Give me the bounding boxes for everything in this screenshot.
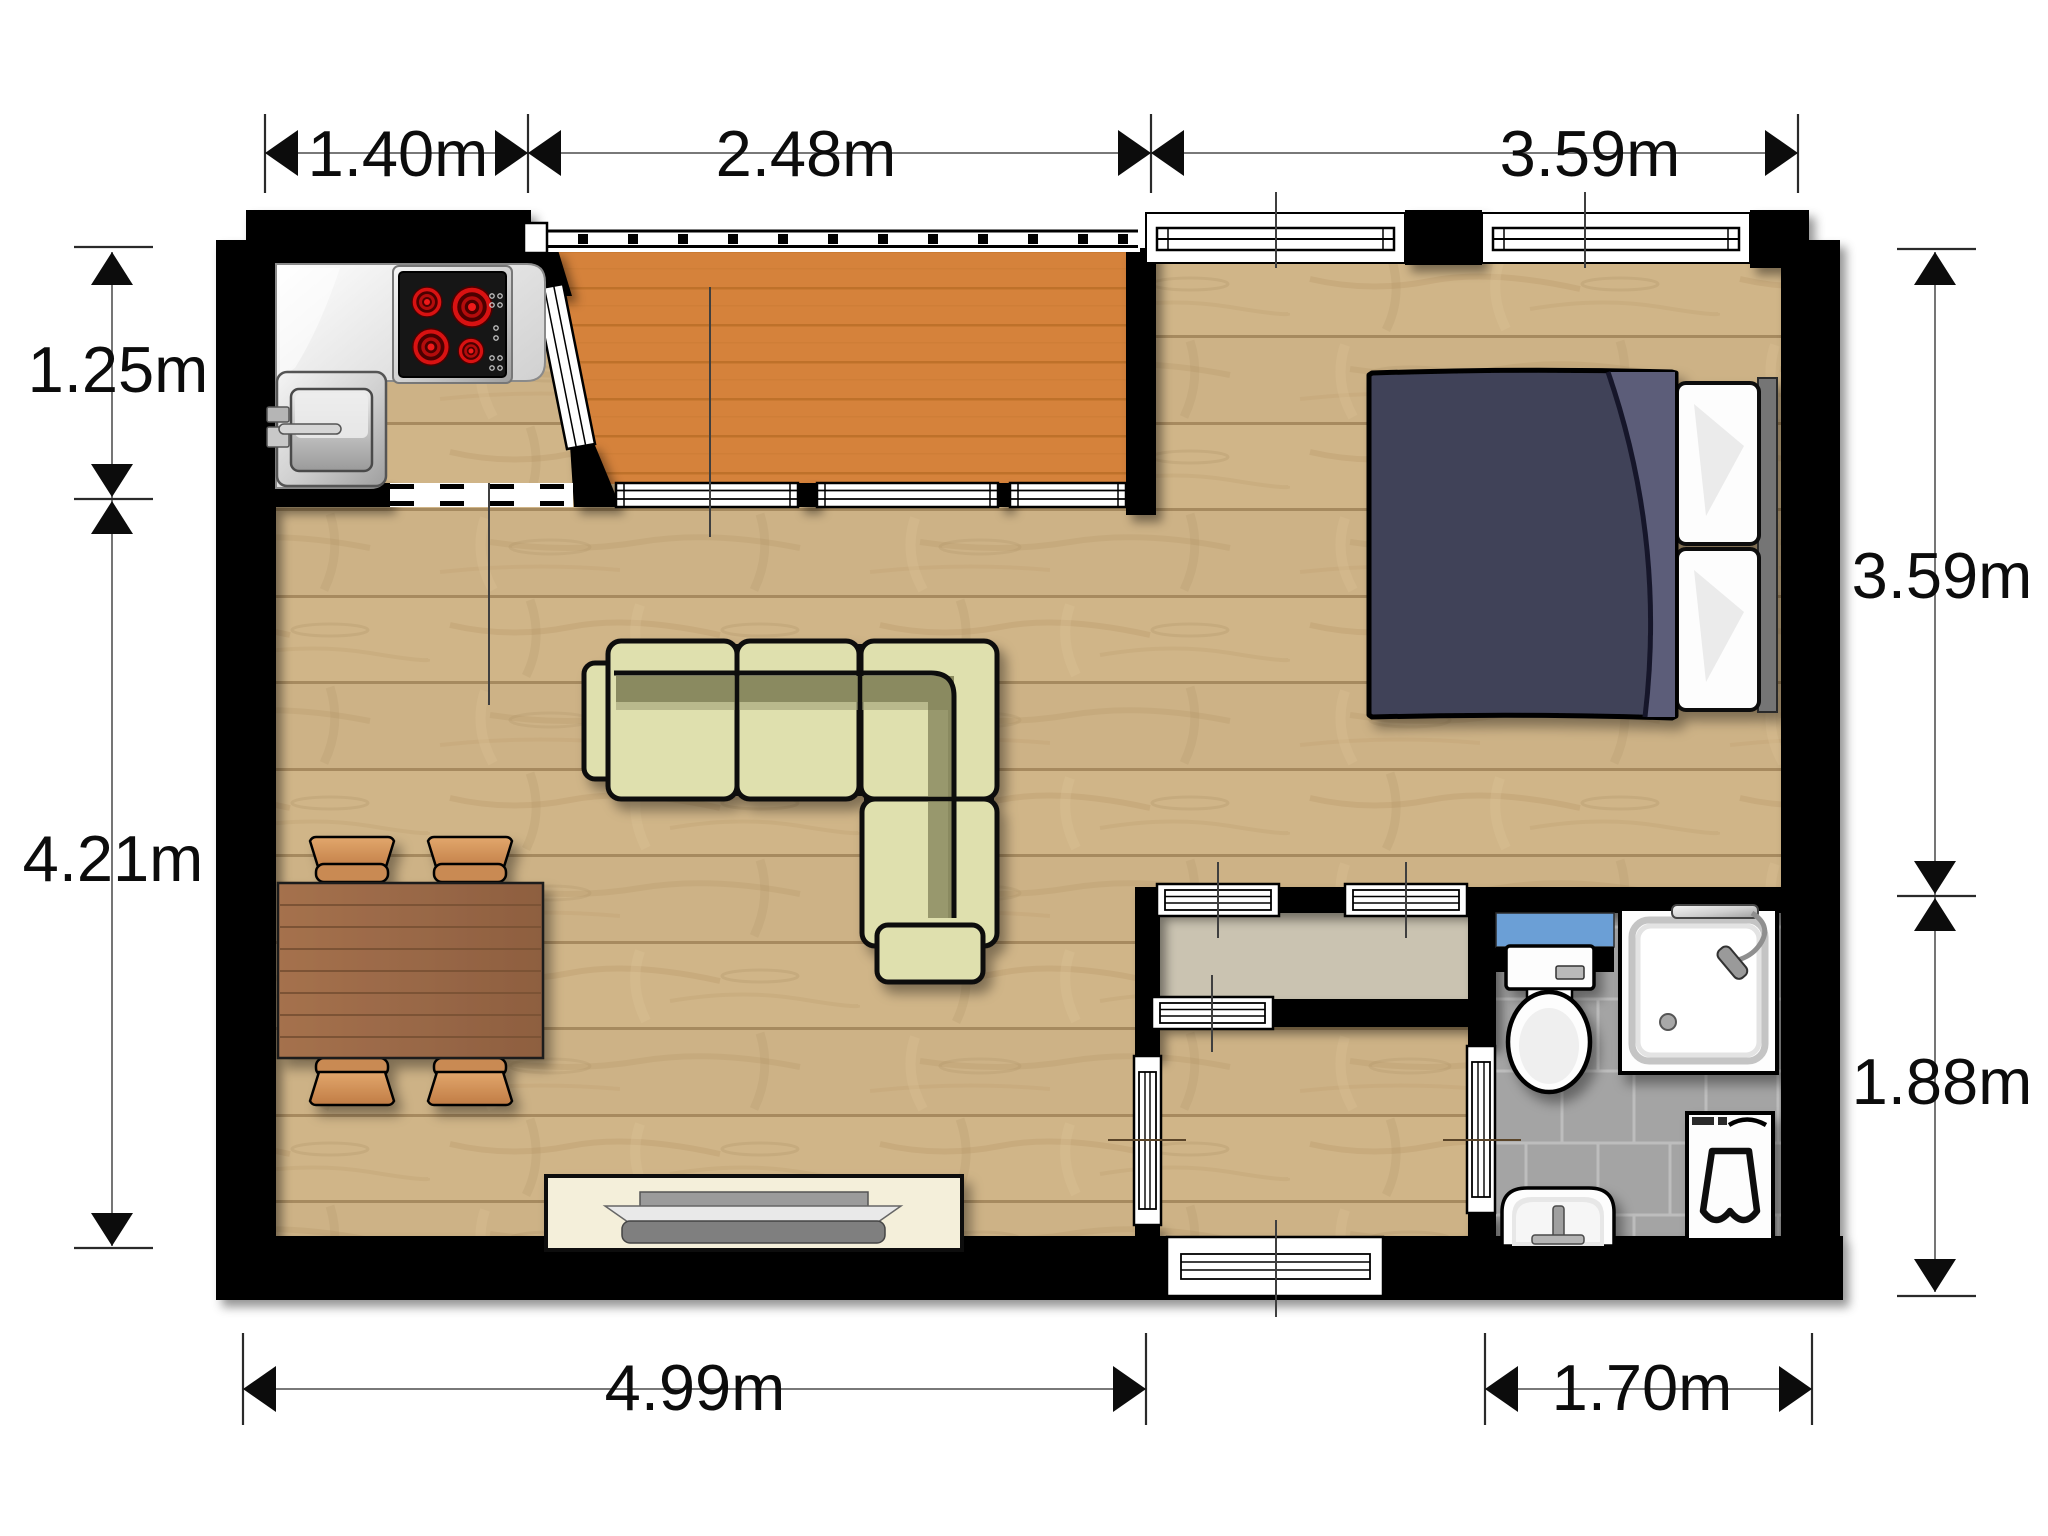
svg-text:2.48m: 2.48m: [716, 117, 897, 190]
svg-text:1.70m: 1.70m: [1552, 1351, 1733, 1424]
svg-text:1.40m: 1.40m: [308, 117, 489, 190]
svg-text:4.21m: 4.21m: [23, 822, 204, 895]
svg-text:1.88m: 1.88m: [1852, 1045, 2033, 1118]
svg-text:1.25m: 1.25m: [28, 333, 209, 406]
svg-text:3.59m: 3.59m: [1500, 117, 1681, 190]
svg-text:3.59m: 3.59m: [1852, 539, 2033, 612]
svg-text:4.99m: 4.99m: [605, 1351, 786, 1424]
